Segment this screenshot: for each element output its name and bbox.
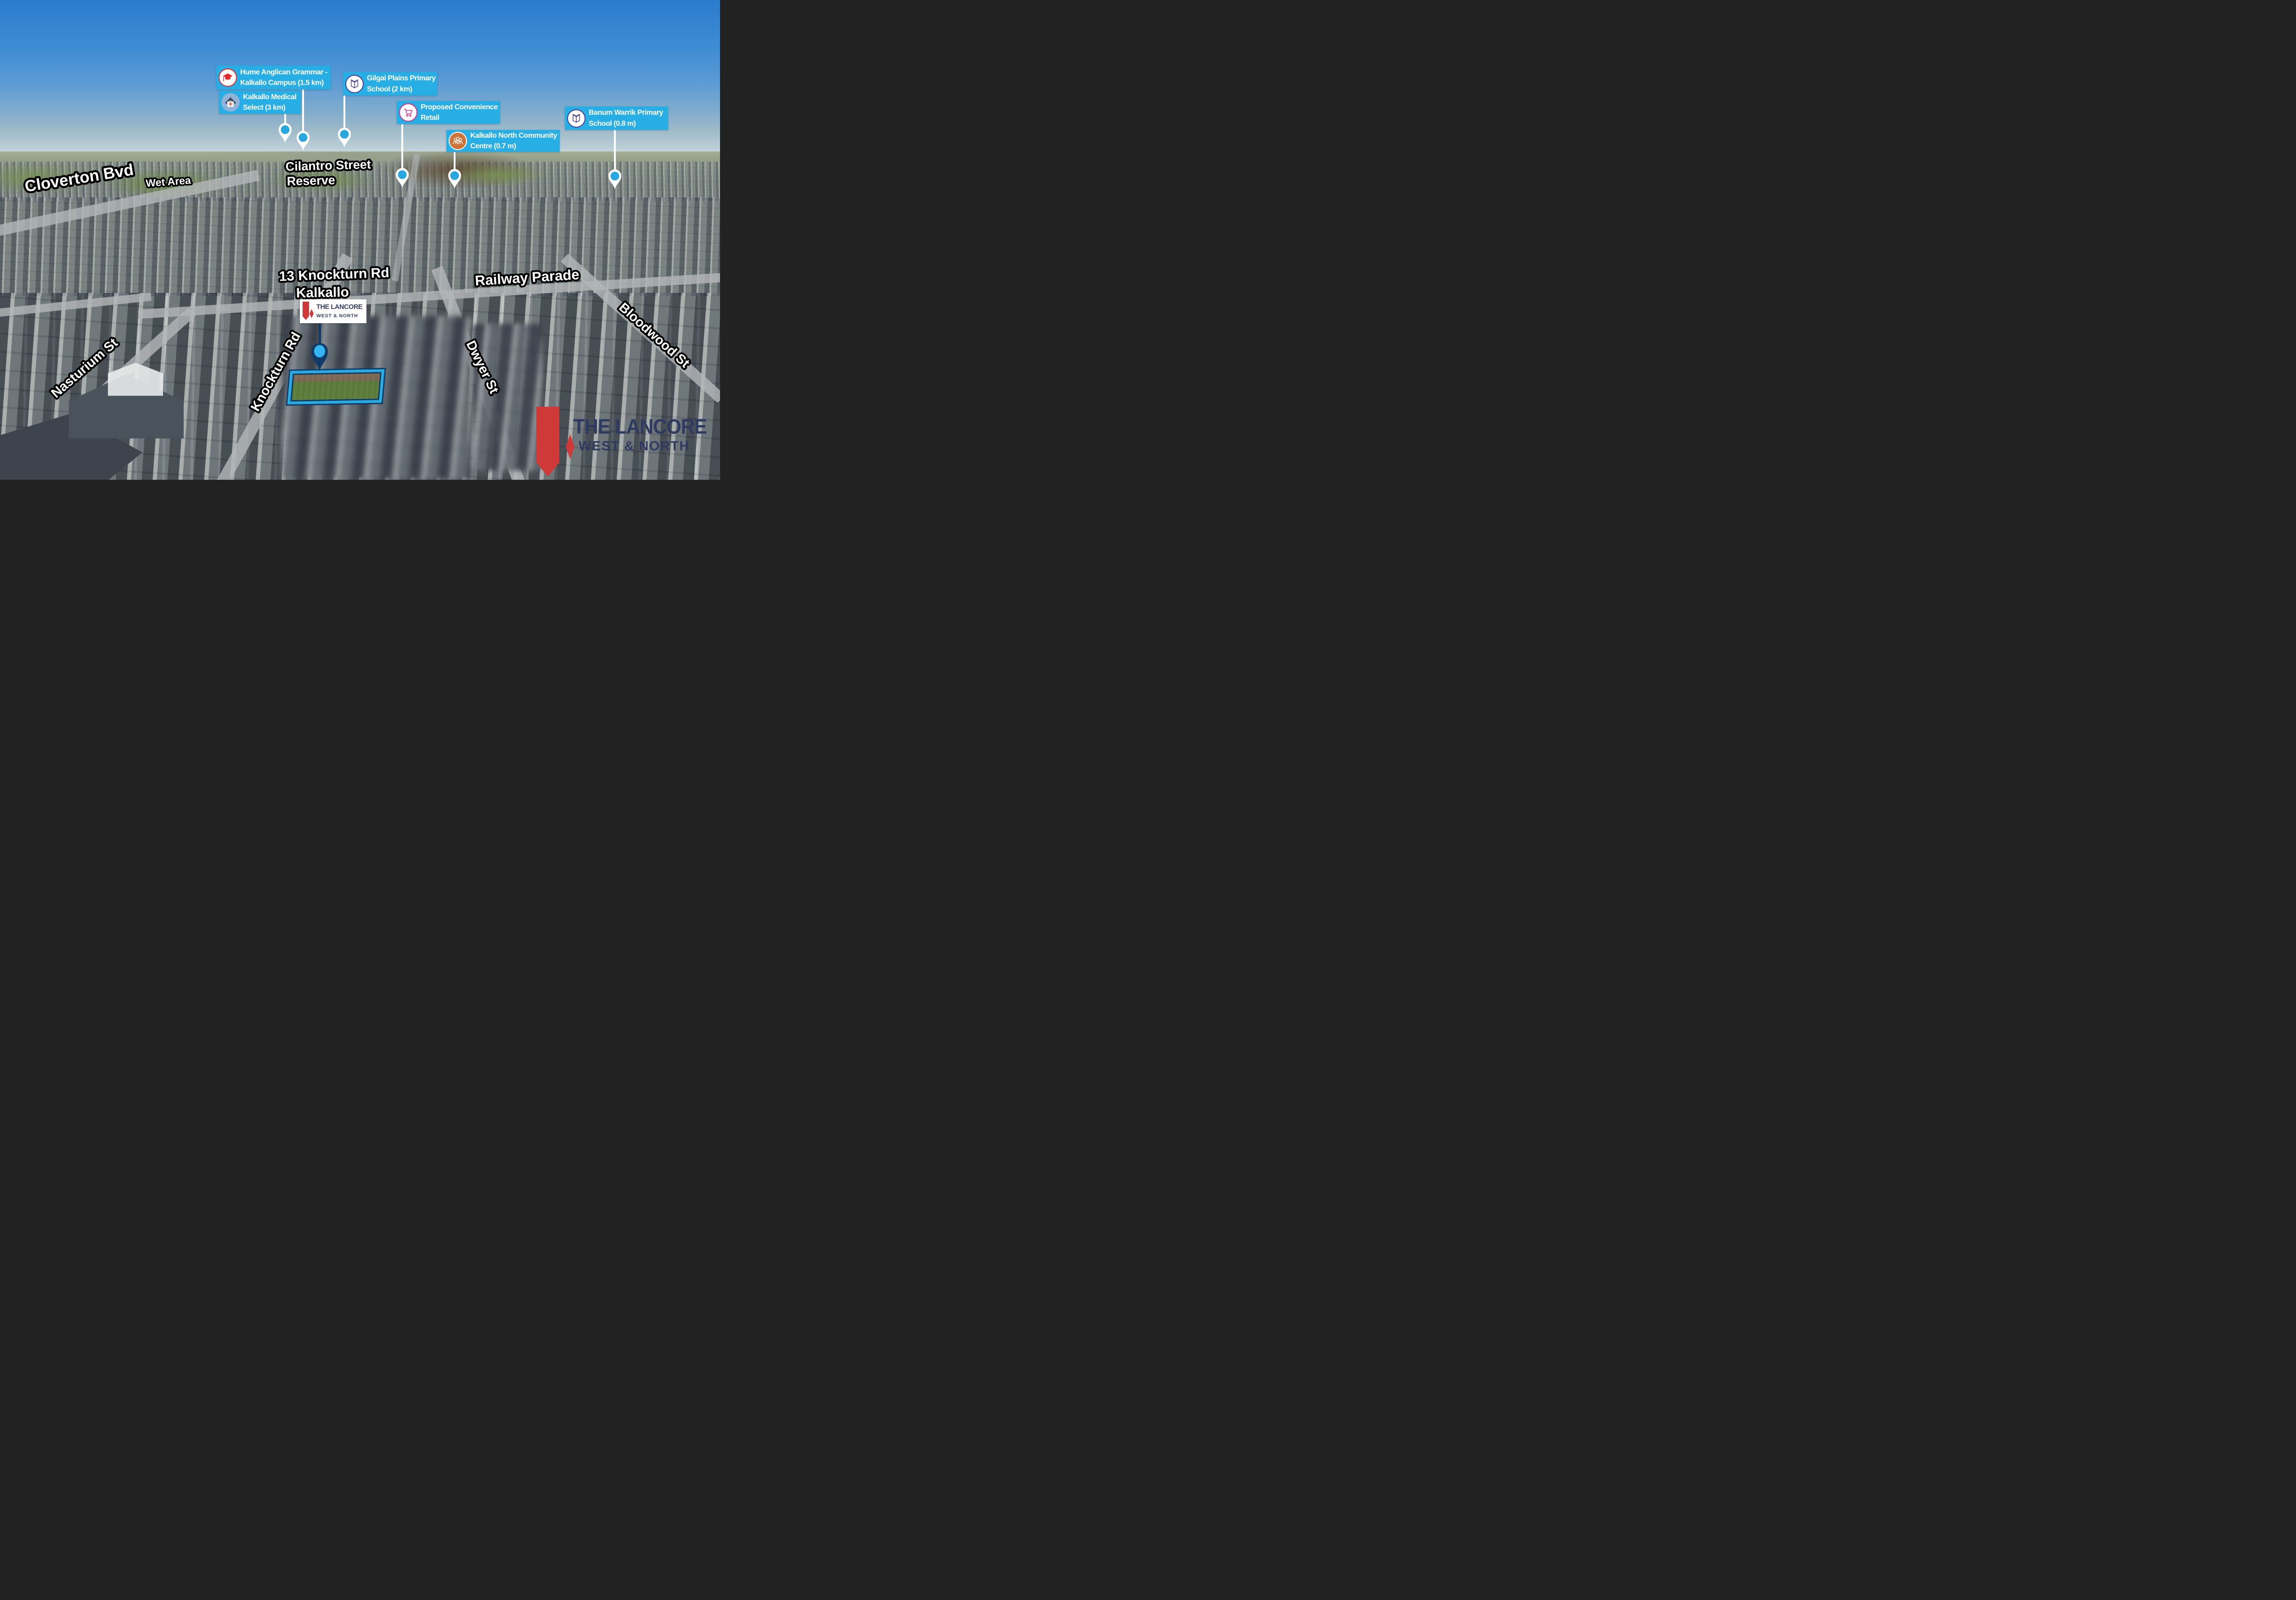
poi-line1: Gilgai Plains Primary [367,73,436,84]
poi-label-kalkallo-north-community: Kalkallo North CommunityCentre (0.7 m) [446,130,560,152]
poi-label-banum-warrik: Banum Warrik PrimarySchool (0.8 m) [565,107,668,130]
medical-house-icon [221,93,240,112]
map-pin-gilgai [338,128,351,148]
map-pin-banum [608,169,622,190]
connector-line-hume [302,90,304,134]
brand-name: THE LANCORE [573,415,707,439]
poi-line2: School (2 km) [367,84,436,95]
people-group-icon [449,132,467,150]
lancore-logo-box: THE LANCORE WEST & NORTH [300,299,366,323]
brand-name: THE LANCORE [316,303,362,311]
highlighted-lot [287,369,385,404]
poi-line2: Centre (0.7 m) [470,141,557,152]
poi-line2: Select (3 km) [243,102,297,113]
poi-line2: School (0.8 m) [589,118,663,129]
poi-line1: Hume Anglican Grammar - [240,67,327,78]
lancore-watermark-logo: THE LANCORE WEST & NORTH [533,404,719,478]
connector-line-gilgai [343,95,345,130]
lancore-logo-bar-icon [536,407,559,477]
poi-line2: Kalkallo Campus (1.5 km) [240,78,327,88]
connector-line-retail [401,124,403,171]
shopping-cart-icon [399,103,417,122]
open-book-icon [345,75,364,93]
property-pin [310,342,330,372]
graduation-cap-icon [219,68,237,87]
open-book-icon [567,109,585,128]
poi-line1: Kalkallo North Community [470,130,557,141]
privacy-blur-region [473,324,542,471]
poi-line1: Banum Warrik Primary [589,107,663,118]
lancore-logo-icon [303,302,315,321]
poi-label-gilgai-plains: Gilgai Plains PrimarySchool (2 km) [343,72,437,95]
brand-region: WEST & NORTH [579,439,690,454]
poi-label-hume-anglican-grammar: Hume Anglican Grammar -Kalkallo Campus (… [216,66,331,90]
connector-line-banum [614,130,616,172]
map-pin-community [448,169,461,189]
map-pin-retail [395,168,409,188]
poi-label-kalkallo-medical: Kalkallo MedicalSelect (3 km) [219,91,301,114]
property-marker-line [319,322,321,343]
poi-label-proposed-retail: Proposed ConvenienceRetail [397,101,500,124]
poi-line1: Proposed Convenience [421,102,498,112]
aerial-map: Cloverton Bvd Wet Area Cilantro Street R… [0,0,720,480]
map-pin-hume [296,131,310,151]
brand-region: WEST & NORTH [316,313,358,319]
poi-line1: Kalkallo Medical [243,92,297,102]
map-pin-medical [278,123,292,143]
poi-line2: Retail [421,112,498,123]
